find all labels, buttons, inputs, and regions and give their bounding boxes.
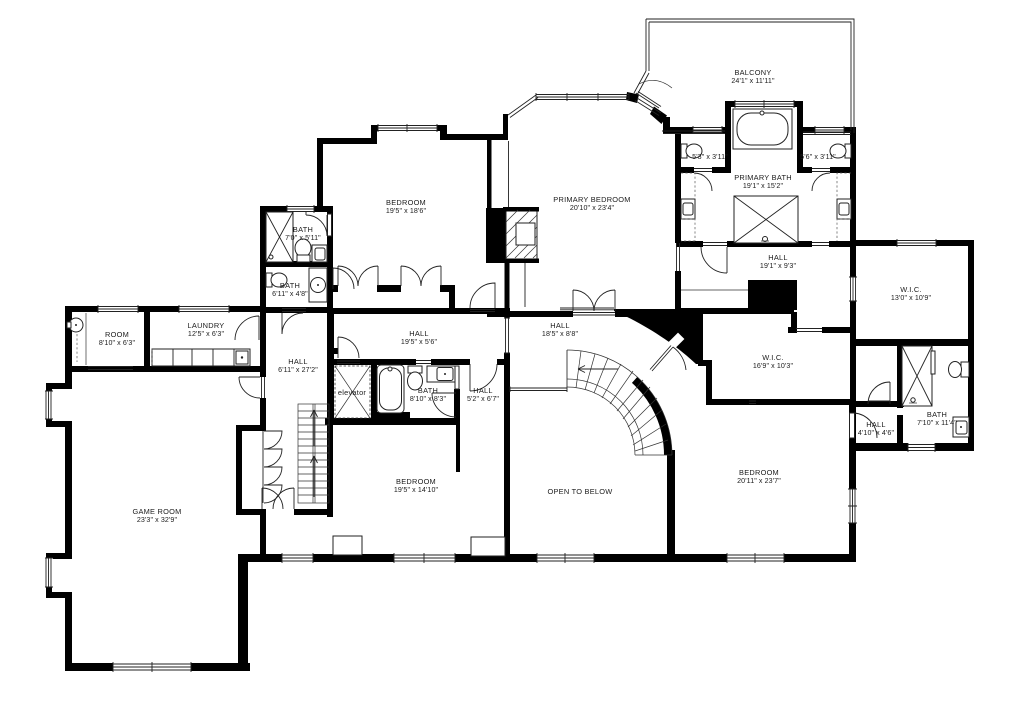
svg-text:19'5" x 14'10": 19'5" x 14'10": [394, 486, 439, 494]
svg-text:BEDROOM: BEDROOM: [386, 198, 426, 207]
svg-text:PRIMARY BATH: PRIMARY BATH: [734, 173, 792, 182]
svg-text:W.I.C.: W.I.C.: [900, 285, 922, 294]
svg-text:BATH: BATH: [280, 281, 300, 290]
svg-text:W.I.C.: W.I.C.: [762, 353, 784, 362]
svg-text:13'0" x 10'9": 13'0" x 10'9": [891, 294, 932, 302]
svg-text:6'11" x 4'8": 6'11" x 4'8": [272, 290, 308, 298]
svg-text:ROOM: ROOM: [105, 330, 129, 339]
svg-text:7'0" x 5'11": 7'0" x 5'11": [285, 234, 321, 242]
svg-text:19'1" x 9'3": 19'1" x 9'3": [760, 262, 797, 270]
svg-text:BATH: BATH: [418, 386, 438, 395]
svg-text:HALL: HALL: [866, 420, 886, 429]
svg-text:20'10" x 23'4": 20'10" x 23'4": [570, 204, 615, 212]
svg-text:HALL: HALL: [409, 329, 429, 338]
svg-text:4'10" x 4'6": 4'10" x 4'6": [858, 429, 895, 437]
svg-text:HALL: HALL: [550, 321, 570, 330]
svg-text:GAME ROOM: GAME ROOM: [132, 507, 181, 516]
svg-text:6'11" x 27'2": 6'11" x 27'2": [278, 366, 318, 374]
svg-text:BATH: BATH: [293, 225, 313, 234]
svg-text:OPEN TO BELOW: OPEN TO BELOW: [548, 487, 613, 496]
svg-text:BALCONY: BALCONY: [734, 68, 771, 77]
svg-text:elevator: elevator: [338, 388, 367, 397]
svg-text:5'3" x 3'11": 5'3" x 3'11": [692, 153, 728, 161]
svg-text:19'1" x 15'2": 19'1" x 15'2": [743, 182, 784, 190]
svg-text:5'2" x 6'7": 5'2" x 6'7": [467, 395, 499, 403]
svg-text:BEDROOM: BEDROOM: [739, 468, 779, 477]
svg-text:19'5" x 18'6": 19'5" x 18'6": [386, 207, 427, 215]
svg-text:19'5" x 5'6": 19'5" x 5'6": [401, 338, 438, 346]
svg-text:20'11" x 23'7": 20'11" x 23'7": [737, 477, 781, 485]
svg-text:8'10" x 6'3": 8'10" x 6'3": [99, 339, 136, 347]
svg-text:HALL: HALL: [768, 253, 788, 262]
svg-text:16'9" x 10'3": 16'9" x 10'3": [753, 362, 794, 370]
svg-text:PRIMARY BEDROOM: PRIMARY BEDROOM: [553, 195, 630, 204]
svg-text:18'5" x 8'8": 18'5" x 8'8": [542, 330, 579, 338]
svg-text:23'3" x 32'9": 23'3" x 32'9": [137, 516, 178, 524]
svg-text:HALL: HALL: [288, 357, 308, 366]
svg-text:LAUNDRY: LAUNDRY: [188, 321, 225, 330]
svg-text:5'6" x 3'11": 5'6" x 3'11": [800, 153, 836, 161]
svg-text:HALL: HALL: [473, 386, 493, 395]
svg-text:12'5" x 6'3": 12'5" x 6'3": [188, 330, 225, 338]
svg-text:8'10" x 8'3": 8'10" x 8'3": [410, 395, 447, 403]
svg-text:7'10" x 11'4": 7'10" x 11'4": [917, 419, 957, 427]
svg-text:24'1" x 11'11": 24'1" x 11'11": [731, 77, 775, 85]
svg-text:BEDROOM: BEDROOM: [396, 477, 436, 486]
svg-text:BATH: BATH: [927, 410, 947, 419]
